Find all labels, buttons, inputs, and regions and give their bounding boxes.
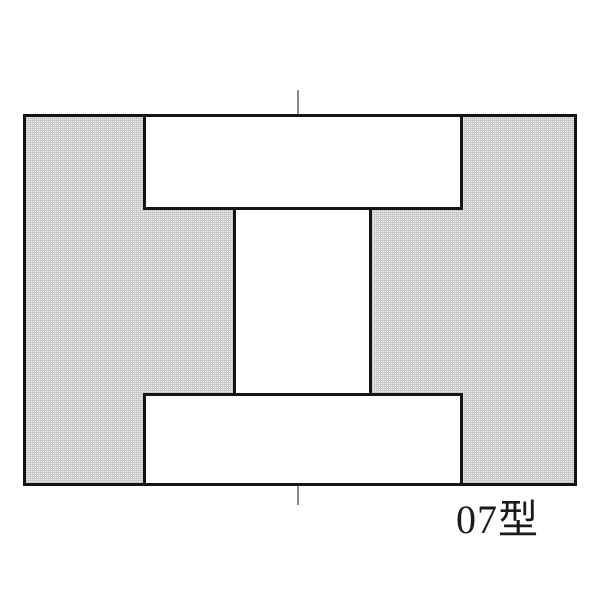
center-window-cutout — [233, 210, 372, 393]
bottom-window-cutout — [143, 393, 463, 483]
centerline-top-segment — [297, 90, 299, 114]
model-type-label: 07型 — [456, 498, 539, 542]
core-body-outline — [23, 114, 577, 486]
centerline-bottom-segment — [297, 486, 299, 505]
drawing-canvas: 07型 — [0, 0, 600, 600]
top-window-cutout — [143, 117, 463, 210]
